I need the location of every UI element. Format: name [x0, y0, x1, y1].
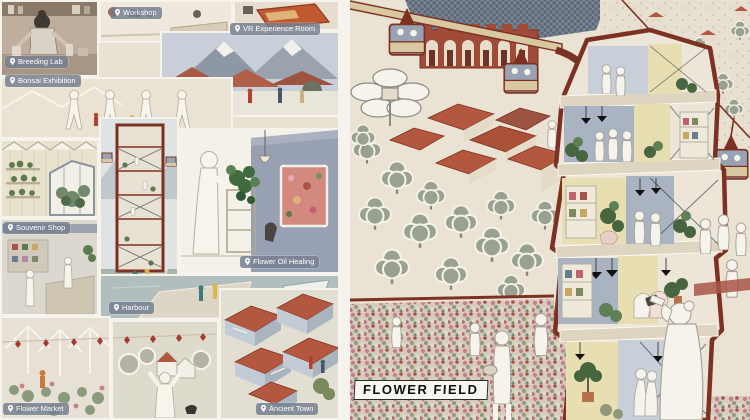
- label-vr-experience-room: VR Experience Room: [230, 23, 320, 35]
- label-text: Bonsai Exhibition: [18, 77, 76, 85]
- shelf-unit: [562, 264, 592, 318]
- greenhouse-vignette: [0, 139, 99, 218]
- panel-divider: [338, 0, 350, 420]
- flower-field-axonometric-panel: [350, 0, 750, 420]
- label-text: Flower Oil Healing: [253, 258, 314, 266]
- label-text: VR Experience Room: [243, 25, 315, 33]
- label-breeding-lab: Breeding Lab: [5, 56, 68, 68]
- label-text: Flower Market: [16, 405, 64, 413]
- location-pin-icon: [8, 224, 13, 231]
- label-flower-oil-healing: Flower Oil Healing: [240, 256, 319, 268]
- location-pin-icon: [245, 258, 250, 265]
- location-pin-icon: [261, 405, 266, 412]
- ancient-town-vignette: [219, 288, 340, 420]
- label-flower-market: Flower Market: [3, 403, 69, 415]
- location-pin-icon: [10, 58, 15, 65]
- location-pin-icon: [10, 77, 15, 84]
- location-pin-icon: [8, 405, 13, 412]
- label-text: Workshop: [123, 9, 157, 17]
- shelf-unit: [680, 112, 708, 158]
- label-harbour: Harbour: [109, 302, 154, 314]
- village-panorama-vignette: [111, 320, 219, 420]
- figure-couple: [634, 369, 657, 416]
- souvenir-shop-art: [2, 220, 97, 314]
- axonometric-art: [350, 0, 750, 420]
- greenhouse-art: [2, 141, 97, 216]
- label-bonsai-exhibition: Bonsai Exhibition: [5, 75, 81, 87]
- location-pin-icon: [235, 25, 240, 32]
- flower-oil-healing-vignette: [179, 128, 340, 274]
- label-ancient-town: Ancient Town: [256, 403, 318, 415]
- label-text: Souvenir Shop: [16, 224, 65, 232]
- ancient-town-art: [221, 290, 338, 418]
- label-souvenir-shop: Souvenir Shop: [3, 222, 70, 234]
- shelf-unit: [566, 186, 596, 238]
- figure-on-roof: [548, 121, 557, 148]
- village-panorama-art: [113, 322, 217, 418]
- flower-field-title: FLOWER FIELD: [353, 380, 488, 400]
- location-pin-icon: [114, 304, 119, 311]
- flower-field-illustration: Workshop VR Experience Room Breeding Lab…: [0, 0, 750, 420]
- label-text: Harbour: [122, 304, 149, 312]
- label-workshop: Workshop: [110, 7, 162, 19]
- label-text: Breeding Lab: [18, 58, 63, 66]
- label-text: Ancient Town: [269, 405, 313, 413]
- oil-healing-art: [181, 130, 338, 272]
- location-pin-icon: [115, 9, 120, 16]
